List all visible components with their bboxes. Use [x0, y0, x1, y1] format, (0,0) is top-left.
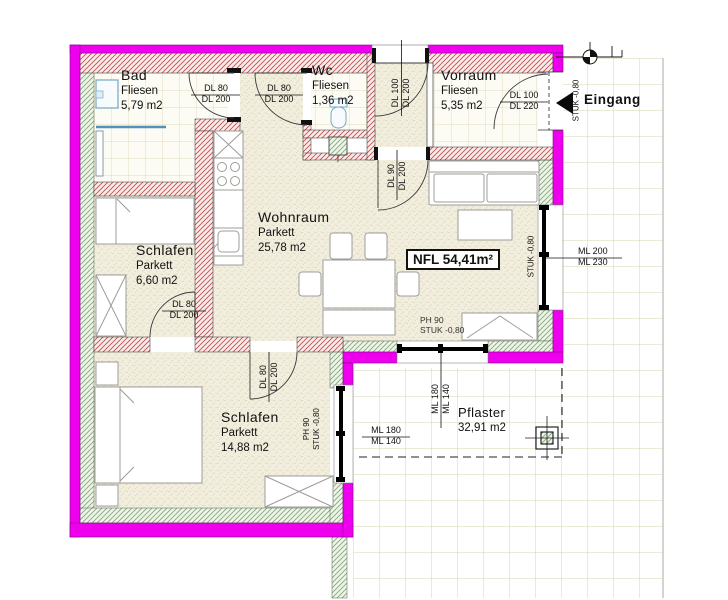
- kitchen-block: [214, 131, 243, 265]
- dim-line2: DL 200: [269, 363, 280, 392]
- entrance-label: Eingang: [584, 92, 641, 107]
- room-label-vorraum: Vorraum Fliesen 5,35 m2: [441, 67, 497, 114]
- dim-line2: DL 220: [510, 101, 539, 112]
- dim-line2: DL 200: [265, 94, 294, 105]
- dim-window-west: ML 180 ML 140: [364, 425, 408, 447]
- room-material: Fliesen: [312, 79, 354, 94]
- note-text: STUK -0,80: [571, 80, 582, 122]
- note-right-window-sill: STUK -0,80: [526, 229, 537, 285]
- dim-window-right: ML 200 ML 230: [578, 246, 608, 268]
- note-line1: PH 90: [420, 315, 464, 325]
- room-label-pflaster: Pflaster 32,91 m2: [458, 404, 506, 436]
- dim-line1: ML 200: [578, 246, 608, 257]
- room-material: Parkett: [258, 226, 329, 241]
- room-area: 5,35 m2: [441, 99, 497, 114]
- room-name: Schlafen: [136, 242, 194, 259]
- dim-line2: ML 230: [578, 257, 608, 268]
- dim-line1: DL 80: [204, 83, 228, 94]
- note-line2: STUK -0,80: [312, 408, 322, 450]
- room-name: Wc: [312, 62, 354, 79]
- room-area: 1,36 m2: [312, 94, 354, 109]
- room-material: Fliesen: [121, 84, 163, 99]
- dim-line2: DL 200: [401, 79, 412, 108]
- shaft: [329, 137, 347, 155]
- dim-line1: ML 180: [430, 384, 441, 414]
- room-label-wohnraum: Wohnraum Parkett 25,78 m2: [258, 209, 329, 256]
- note-line2: STUK -0,80: [420, 325, 464, 335]
- dim-entry-door: DL 100 DL 220: [500, 90, 548, 112]
- floor-plan-drawing: [0, 0, 728, 600]
- room-label-wc: Wc Fliesen 1,36 m2: [312, 62, 354, 109]
- dim-window-south: ML 180 ML 140: [430, 376, 452, 422]
- total-area-badge: NFL 54,41m²: [406, 249, 500, 270]
- room-name: Pflaster: [458, 404, 506, 421]
- dim-line1: ML 180: [371, 425, 401, 436]
- dim-line1: DL 80: [267, 83, 291, 94]
- dim-top-door: DL 100 DL 200: [390, 70, 412, 116]
- room-label-schlafen-klein: Schlafen Parkett 6,60 m2: [136, 242, 194, 289]
- bed-single: [96, 198, 194, 244]
- dim-line2: DL 200: [170, 310, 199, 321]
- room-label-bad: Bad Fliesen 5,79 m2: [121, 67, 163, 114]
- wardrobe-large: [265, 476, 333, 507]
- dim-line2: DL 200: [202, 94, 231, 105]
- room-material: Fliesen: [441, 84, 497, 99]
- dim-wc-door: DL 80 DL 200: [256, 83, 302, 105]
- room-label-schlafen-gross: Schlafen Parkett 14,88 m2: [221, 409, 279, 456]
- room-area: 5,79 m2: [121, 99, 163, 114]
- room-area: 6,60 m2: [136, 274, 194, 289]
- dim-line2: ML 140: [441, 384, 452, 414]
- dim-line1: DL 90: [386, 164, 397, 188]
- room-area: 25,78 m2: [258, 241, 329, 256]
- room-area: 14,88 m2: [221, 441, 279, 456]
- light-partition: [427, 63, 433, 147]
- sofa: [429, 161, 539, 205]
- dim-line1: DL 100: [510, 90, 539, 101]
- sideboard: [462, 313, 537, 340]
- room-material: Parkett: [221, 426, 279, 441]
- wardrobe-small: [96, 275, 126, 336]
- room-area: 32,91 m2: [458, 421, 506, 436]
- dim-line1: DL 80: [172, 299, 196, 310]
- note-text: STUK -0,80: [526, 236, 537, 278]
- dim-line1: DL 80: [258, 365, 269, 389]
- note-west-window: PH 90 STUK -0,80: [302, 401, 322, 457]
- coffee-table: [458, 210, 512, 240]
- dim-schlafen-klein-door: DL 80 DL 200: [161, 299, 207, 321]
- note-entry-sill: STUK -0,80: [571, 73, 582, 129]
- room-name: Bad: [121, 67, 163, 84]
- dim-vorraum-wohnraum-door: DL 90 DL 200: [386, 153, 408, 199]
- toilet-bowl: [331, 107, 346, 128]
- room-material: Parkett: [136, 259, 194, 274]
- dim-line1: DL 100: [390, 79, 401, 108]
- dim-line2: DL 200: [397, 162, 408, 191]
- dim-line2: ML 140: [371, 436, 401, 447]
- note-south-window: PH 90 STUK -0,80: [420, 315, 464, 335]
- dim-schlafen-gross-door: DL 80 DL 200: [258, 354, 280, 400]
- floor-plan: Bad Fliesen 5,79 m2 Wc Fliesen 1,36 m2 V…: [0, 0, 728, 600]
- dim-bad-door: DL 80 DL 200: [193, 83, 239, 105]
- radiator: [96, 131, 103, 176]
- room-name: Wohnraum: [258, 209, 329, 226]
- room-name: Vorraum: [441, 67, 497, 84]
- note-line1: PH 90: [302, 418, 312, 440]
- room-name: Schlafen: [221, 409, 279, 426]
